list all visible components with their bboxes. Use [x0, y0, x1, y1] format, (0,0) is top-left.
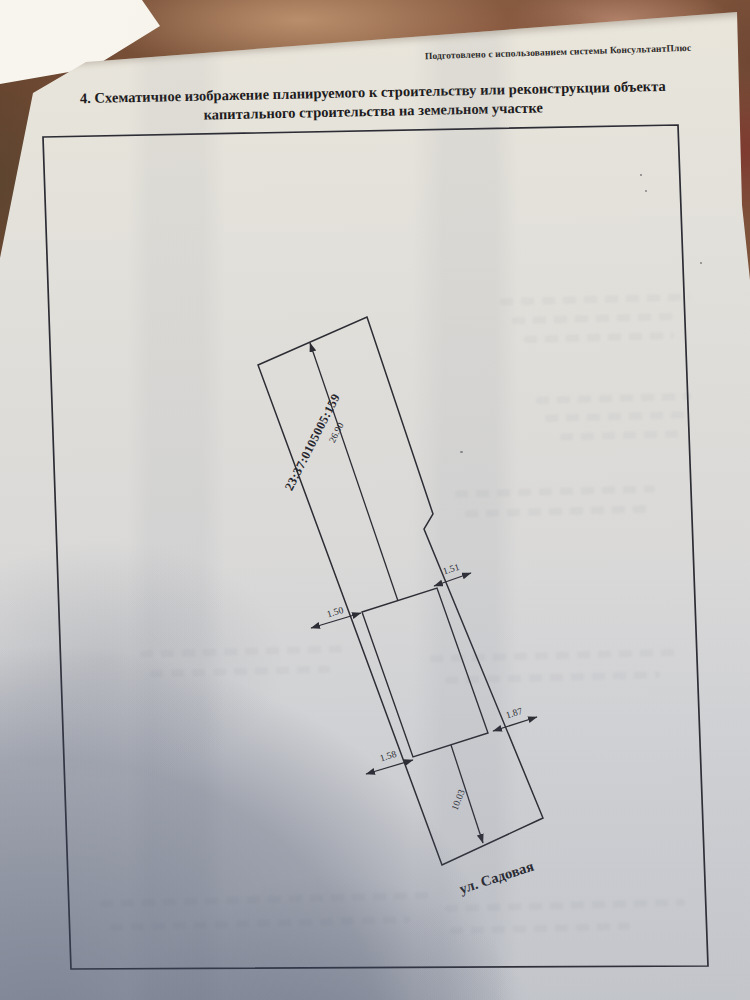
- parcel-boundary: [258, 317, 543, 865]
- dimension-label-gap-lower-right: 1.87: [505, 706, 524, 720]
- dimension-line-gap-lower-right: [493, 717, 537, 731]
- building-outline: [362, 588, 488, 757]
- dimension-label-gap-upper-left: 1.50: [326, 605, 345, 619]
- dimension-line-gap-upper-right: [434, 573, 471, 586]
- site-plan-drawing: 23:37:0105005:159 26.90 10.03 1.50 1.51 …: [0, 0, 750, 1000]
- dimension-label-gap-lower-left: 1.58: [379, 749, 398, 763]
- drawing-frame: [43, 125, 708, 969]
- dimension-line-rear: [310, 343, 398, 601]
- document-page: Подготовлено с использованием системы Ко…: [0, 0, 750, 1000]
- dimension-label-front: 10.03: [450, 788, 467, 812]
- dimension-label-gap-upper-right: 1.51: [442, 562, 461, 576]
- document-photo: Подготовлено с использованием системы Ко…: [0, 0, 750, 1000]
- street-name-label: ул. Садовая: [457, 858, 535, 897]
